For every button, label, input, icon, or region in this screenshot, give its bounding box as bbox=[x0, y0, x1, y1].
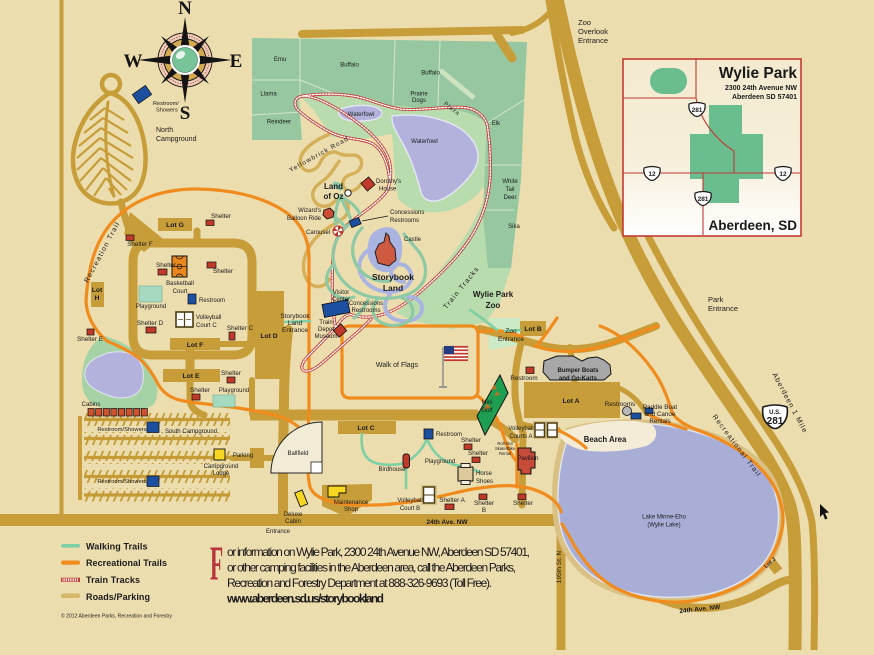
svg-text:Lot B: Lot B bbox=[524, 326, 541, 333]
svg-text:Land: Land bbox=[383, 283, 403, 293]
svg-text:Restroom/: Restroom/ bbox=[153, 101, 179, 107]
svg-text:Shelter: Shelter bbox=[461, 437, 481, 444]
svg-text:Campground: Campground bbox=[156, 136, 197, 143]
svg-text:Parking: Parking bbox=[233, 453, 253, 459]
svg-text:Recreational Trails: Recreational Trails bbox=[86, 558, 167, 568]
svg-text:Cabins: Cabins bbox=[82, 402, 101, 408]
svg-text:Land: Land bbox=[324, 182, 343, 191]
svg-text:Lot F: Lot F bbox=[187, 342, 204, 349]
svg-text:Visitor: Visitor bbox=[333, 290, 350, 296]
svg-text:Deer: Deer bbox=[503, 195, 516, 201]
svg-text:Shelter F: Shelter F bbox=[127, 241, 153, 248]
svg-text:Shop: Shop bbox=[344, 507, 359, 513]
svg-text:Restrooms: Restrooms bbox=[605, 401, 635, 408]
svg-text:Restrooms: Restrooms bbox=[351, 308, 380, 314]
svg-text:Restrooms: Restrooms bbox=[390, 218, 419, 224]
svg-text:Train Tracks: Train Tracks bbox=[86, 575, 140, 585]
svg-text:281: 281 bbox=[692, 107, 703, 114]
svg-text:Court: Court bbox=[173, 289, 188, 295]
svg-text:Volleyball: Volleyball bbox=[196, 315, 221, 321]
svg-text:W: W bbox=[124, 51, 143, 72]
svg-text:Restroom/Showers: Restroom/Showers bbox=[97, 427, 146, 433]
svg-text:Court B: Court B bbox=[400, 506, 420, 512]
svg-text:Bumper Boats: Bumper Boats bbox=[557, 368, 599, 374]
svg-text:S: S bbox=[180, 103, 191, 124]
svg-text:Entrance: Entrance bbox=[578, 36, 608, 45]
svg-text:Ballfield: Ballfield bbox=[287, 451, 308, 457]
svg-text:Volleyball: Volleyball bbox=[397, 498, 422, 504]
svg-text:Shelter C: Shelter C bbox=[227, 325, 254, 332]
svg-text:Center: Center bbox=[332, 297, 350, 303]
svg-text:Wylie Park: Wylie Park bbox=[719, 65, 798, 82]
svg-text:Cabin: Cabin bbox=[285, 519, 301, 525]
svg-text:Horse: Horse bbox=[476, 471, 493, 477]
svg-text:Lake Minne-Eho: Lake Minne-Eho bbox=[642, 515, 686, 521]
svg-text:Walk of Flags: Walk of Flags bbox=[376, 362, 419, 369]
svg-text:Shelter D: Shelter D bbox=[137, 320, 164, 327]
svg-text:South Campground: South Campground bbox=[165, 429, 217, 435]
svg-text:Shelter: Shelter bbox=[468, 450, 488, 457]
svg-text:Playground: Playground bbox=[425, 459, 455, 465]
svg-text:Paddle Boat: Paddle Boat bbox=[643, 404, 678, 411]
svg-text:Restroom/Showers: Restroom/Showers bbox=[97, 479, 146, 485]
svg-text:Museum: Museum bbox=[314, 334, 337, 340]
svg-text:Lot C: Lot C bbox=[357, 425, 374, 432]
svg-text:Shelter A: Shelter A bbox=[439, 497, 465, 504]
svg-text:Deluxe: Deluxe bbox=[284, 512, 303, 518]
svg-text:Lot A: Lot A bbox=[562, 398, 579, 405]
svg-text:Zoo: Zoo bbox=[486, 301, 501, 310]
svg-text:Recreation and Forestry Depart: Recreation and Forestry Department at 88… bbox=[227, 576, 492, 590]
svg-text:Courts A: Courts A bbox=[509, 434, 532, 440]
svg-text:281: 281 bbox=[767, 416, 784, 427]
svg-text:Mini: Mini bbox=[481, 400, 492, 406]
svg-text:E: E bbox=[230, 51, 243, 72]
svg-text:H: H bbox=[95, 295, 100, 302]
svg-text:Volleyball: Volleyball bbox=[508, 426, 533, 432]
svg-text:of Oz: of Oz bbox=[324, 192, 344, 201]
svg-text:Campground: Campground bbox=[204, 464, 239, 470]
svg-text:Shelter: Shelter bbox=[190, 387, 210, 394]
svg-text:Lot E: Lot E bbox=[183, 373, 200, 380]
svg-text:Zoo: Zoo bbox=[505, 328, 517, 335]
svg-text:2300 24th Avenue NW: 2300 24th Avenue NW bbox=[725, 83, 798, 92]
svg-text:Walking Trails: Walking Trails bbox=[86, 542, 148, 552]
svg-text:B: B bbox=[482, 507, 486, 514]
svg-text:Roads/Parking: Roads/Parking bbox=[86, 592, 150, 602]
svg-text:12: 12 bbox=[779, 171, 787, 178]
svg-text:(Wylie Lake): (Wylie Lake) bbox=[647, 523, 680, 529]
svg-text:Shelter: Shelter bbox=[474, 500, 494, 507]
svg-text:Lot: Lot bbox=[92, 287, 103, 294]
svg-text:Overlook: Overlook bbox=[578, 27, 608, 36]
svg-text:Rentals: Rentals bbox=[649, 418, 670, 425]
svg-text:Park: Park bbox=[708, 295, 724, 304]
svg-text:Elk: Elk bbox=[492, 121, 501, 127]
svg-text:Sika: Sika bbox=[508, 224, 520, 230]
svg-text:Lodge: Lodge bbox=[213, 471, 230, 477]
svg-text:Restroom: Restroom bbox=[199, 298, 225, 304]
svg-text:Wizard's: Wizard's bbox=[298, 208, 321, 214]
svg-text:Restroom: Restroom bbox=[510, 375, 537, 382]
svg-text:Shelter: Shelter bbox=[221, 370, 241, 377]
svg-text:Shelter: Shelter bbox=[211, 213, 231, 220]
svg-text:Castle: Castle bbox=[404, 237, 422, 243]
svg-text:Shelter: Shelter bbox=[213, 268, 233, 275]
svg-text:and Canoe: and Canoe bbox=[645, 411, 676, 418]
svg-text:Entrance: Entrance bbox=[266, 529, 291, 535]
svg-text:Playground: Playground bbox=[136, 304, 166, 310]
svg-text:North: North bbox=[156, 127, 173, 134]
svg-text:www.aberdeen.sd.us/storybookla: www.aberdeen.sd.us/storybookland bbox=[226, 592, 384, 606]
svg-text:281: 281 bbox=[698, 196, 709, 203]
svg-text:Tail: Tail bbox=[505, 187, 514, 193]
svg-text:Lot G: Lot G bbox=[166, 222, 184, 229]
svg-text:Storybook: Storybook bbox=[280, 313, 310, 320]
svg-text:Zoo: Zoo bbox=[578, 18, 591, 27]
svg-text:Carousel: Carousel bbox=[306, 230, 330, 236]
svg-text:Aberdeen SD 57401: Aberdeen SD 57401 bbox=[732, 92, 797, 101]
svg-text:Shelter: Shelter bbox=[513, 500, 533, 507]
svg-text:Waterfowl: Waterfowl bbox=[348, 112, 374, 118]
svg-text:Shoes: Shoes bbox=[476, 479, 493, 485]
svg-text:or information on Wylie Park,: or information on Wylie Park, 2300 24th … bbox=[227, 545, 530, 559]
svg-text:Court C: Court C bbox=[196, 323, 217, 329]
svg-text:Buffalo: Buffalo bbox=[340, 63, 359, 69]
svg-text:Wylie Park: Wylie Park bbox=[473, 290, 514, 299]
svg-text:24th Ave. NW: 24th Ave. NW bbox=[426, 519, 468, 526]
svg-text:Maintenance: Maintenance bbox=[334, 500, 369, 506]
svg-text:Entrance: Entrance bbox=[498, 336, 524, 343]
svg-text:Lot D: Lot D bbox=[260, 333, 277, 340]
svg-text:Aberdeen, SD: Aberdeen, SD bbox=[708, 218, 797, 233]
svg-text:and Go-Karts: and Go-Karts bbox=[559, 376, 598, 382]
svg-text:Golf: Golf bbox=[481, 408, 492, 414]
svg-text:Playground: Playground bbox=[219, 388, 249, 394]
svg-text:Shelter E: Shelter E bbox=[77, 336, 103, 343]
svg-text:Waterfowl: Waterfowl bbox=[411, 139, 437, 145]
svg-text:or other camping facilities in: or other camping facilities in the Aberd… bbox=[227, 561, 516, 575]
svg-text:Concessions: Concessions bbox=[349, 301, 383, 307]
svg-text:© 2012 Aberdeen Parks, Recreat: © 2012 Aberdeen Parks, Recreation and Fo… bbox=[61, 613, 173, 620]
svg-text:Beach Area: Beach Area bbox=[584, 435, 627, 444]
svg-text:Balloon Ride: Balloon Ride bbox=[287, 216, 322, 222]
svg-text:Buffalo: Buffalo bbox=[421, 71, 440, 77]
svg-text:Concessions: Concessions bbox=[390, 210, 424, 216]
svg-text:Entrance: Entrance bbox=[282, 327, 308, 334]
svg-text:12: 12 bbox=[648, 171, 656, 178]
svg-text:Depot: Depot bbox=[318, 327, 334, 333]
svg-text:Pavilion: Pavilion bbox=[517, 456, 538, 462]
svg-text:Restroom: Restroom bbox=[436, 432, 462, 438]
svg-text:Rental: Rental bbox=[499, 451, 511, 456]
svg-text:Land: Land bbox=[288, 320, 303, 327]
svg-text:195th St. N: 195th St. N bbox=[556, 550, 563, 583]
svg-text:Entrance: Entrance bbox=[708, 304, 738, 313]
svg-text:Prairie: Prairie bbox=[410, 92, 428, 98]
svg-text:Basketball: Basketball bbox=[166, 281, 194, 287]
svg-text:Emu: Emu bbox=[274, 57, 286, 63]
svg-text:F: F bbox=[210, 537, 223, 591]
svg-text:Train: Train bbox=[319, 320, 332, 326]
svg-text:Dogs: Dogs bbox=[412, 98, 426, 104]
svg-text:Shelter: Shelter bbox=[156, 262, 176, 269]
svg-text:White: White bbox=[502, 179, 518, 185]
svg-text:Llama: Llama bbox=[260, 92, 277, 98]
svg-text:Showers: Showers bbox=[156, 108, 178, 114]
svg-text:N: N bbox=[178, 0, 192, 19]
svg-text:Storybook: Storybook bbox=[372, 272, 414, 282]
svg-text:House: House bbox=[379, 187, 397, 193]
svg-text:Dorothy's: Dorothy's bbox=[376, 179, 401, 185]
svg-text:Birdhouse: Birdhouse bbox=[378, 467, 406, 473]
svg-text:Reindeer: Reindeer bbox=[267, 120, 291, 126]
